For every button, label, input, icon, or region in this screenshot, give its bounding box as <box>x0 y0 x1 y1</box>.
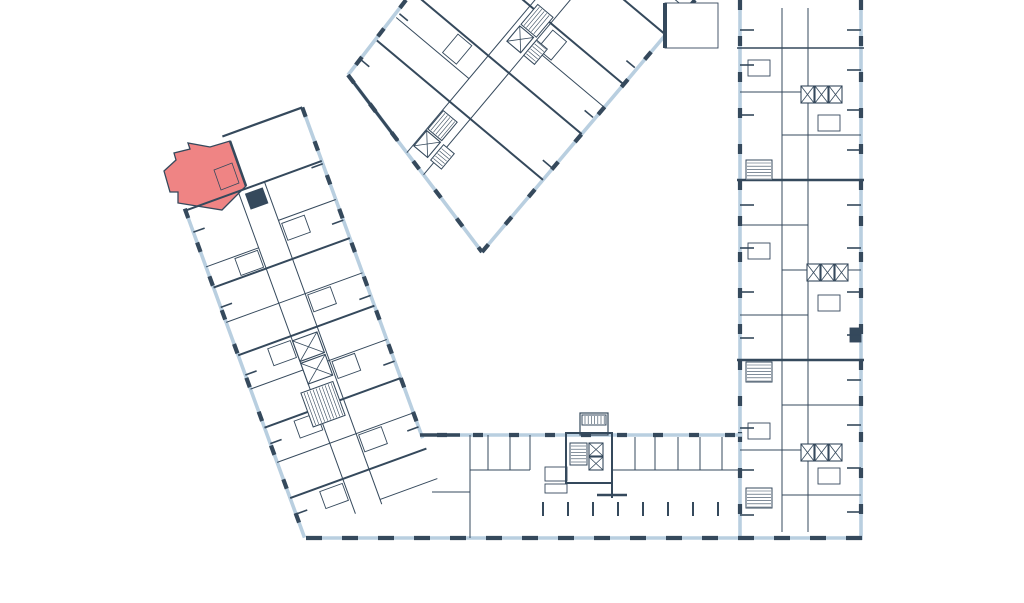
wall-line <box>270 440 281 444</box>
room-outline <box>818 115 840 131</box>
wall-line <box>380 479 437 500</box>
floor-plan <box>0 0 1024 603</box>
wall-line <box>543 160 551 167</box>
wall-line <box>361 60 369 67</box>
wall-line <box>290 449 426 499</box>
room-outline <box>545 467 567 481</box>
wall-line <box>399 14 407 21</box>
room-outline <box>332 353 361 378</box>
room-outline <box>748 60 770 76</box>
room-outline <box>359 427 388 452</box>
wall-line <box>226 273 362 323</box>
wing-top-local <box>322 0 800 253</box>
wing-top <box>322 0 800 253</box>
wall-line <box>214 238 350 288</box>
wall-line <box>332 220 343 224</box>
wall-line <box>206 248 259 267</box>
wall-line <box>407 427 418 431</box>
wall-line <box>585 110 593 117</box>
wall-line <box>278 199 335 220</box>
room-outline <box>308 287 337 312</box>
wing-right <box>737 0 864 540</box>
room-outline <box>545 484 567 493</box>
wall-line <box>221 303 232 307</box>
connector-block <box>665 3 718 48</box>
room-outline <box>748 423 770 439</box>
room-outline <box>320 483 349 508</box>
wing-bottom <box>306 413 862 538</box>
solid-wall-block <box>245 188 267 209</box>
room-outline <box>748 243 770 259</box>
room-outline <box>268 341 297 366</box>
floor-plan-viewport <box>0 0 1024 603</box>
room-outline <box>818 295 840 311</box>
wall-line <box>245 371 256 375</box>
wall-line <box>222 107 302 136</box>
wall-line <box>626 61 634 68</box>
connector-outline <box>665 3 718 48</box>
wall-line <box>383 361 394 365</box>
room-outline <box>282 215 311 240</box>
room-outline <box>818 468 840 484</box>
wall-line <box>193 228 204 232</box>
wall-line <box>264 182 381 504</box>
wall-line <box>396 18 469 79</box>
wall-line <box>359 295 370 299</box>
highlighted-unit-group <box>164 141 246 210</box>
stair-core <box>582 415 606 425</box>
wall-line <box>348 75 398 141</box>
wall-line <box>377 41 553 189</box>
wall-line <box>296 510 307 514</box>
